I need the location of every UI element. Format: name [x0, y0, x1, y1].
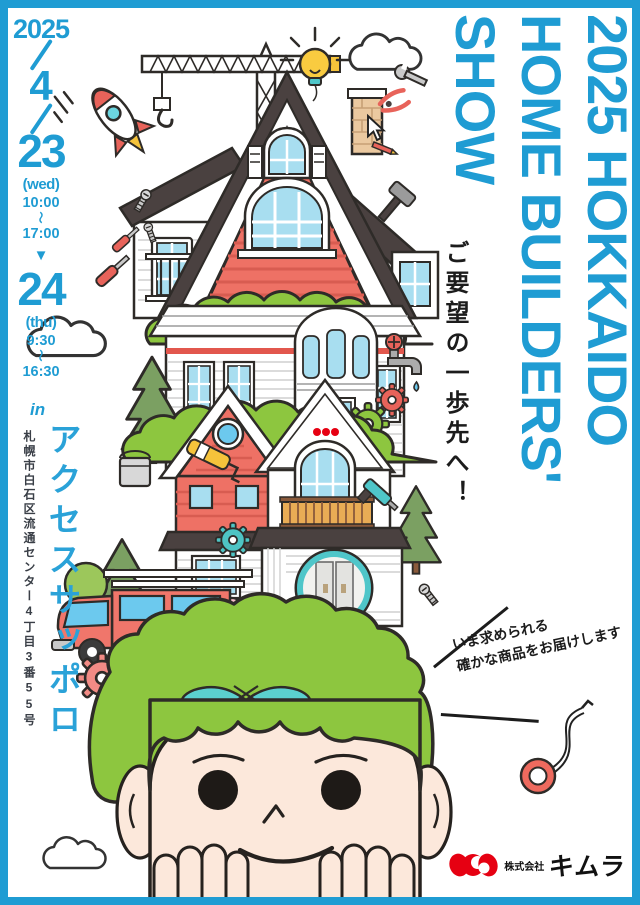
- event-year: 2025: [12, 16, 70, 43]
- down-arrow-icon: ▼: [12, 248, 70, 263]
- poster: 2025 4 23 (wed) 10:00 〜 17:00 ▼ 24 (thu)…: [0, 0, 640, 905]
- company-logo: 株式会社 キムラ: [449, 847, 626, 883]
- company-prefix: 株式会社: [504, 858, 544, 873]
- event-title-line1: 2025 HOKKAIDO: [574, 14, 640, 574]
- time-tilde: 〜: [36, 326, 47, 384]
- venue-name: アクセスサッポロ: [38, 422, 86, 742]
- tape-measure-icon: [521, 701, 593, 793]
- hand-icon: [154, 845, 248, 905]
- event-day2: 24: [12, 266, 70, 312]
- event-title-line2: HOME BUILDERS': [508, 14, 574, 574]
- event-month: 4: [12, 65, 70, 107]
- boy-face-icon: [117, 700, 451, 905]
- time-tilde: 〜: [36, 188, 47, 246]
- venue-in-label: in: [30, 400, 45, 420]
- company-name: キムラ: [547, 847, 628, 883]
- hand-icon: [320, 845, 414, 905]
- company-logo-mark-icon: [449, 850, 499, 880]
- venue-address: 札幌市白石区流通センター4丁目3番55号: [21, 430, 38, 728]
- event-tagline: ご要望の一歩先へ！: [437, 240, 472, 510]
- event-day1: 23: [12, 128, 70, 174]
- schedule-block: 2025 4 23 (wed) 10:00 〜 17:00 ▼ 24 (thu)…: [12, 16, 70, 379]
